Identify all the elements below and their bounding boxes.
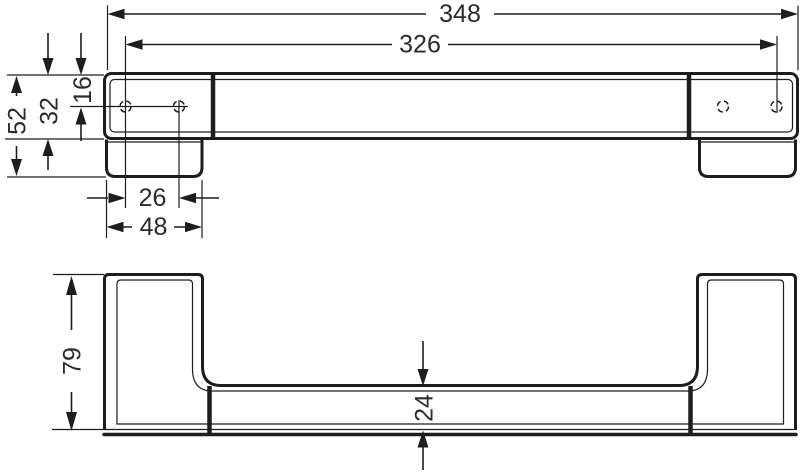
dim-26-arrow-right xyxy=(179,193,196,203)
dim-52-arrow-top xyxy=(11,76,22,93)
dim-16: 16 xyxy=(69,33,97,141)
dim-326: 326 xyxy=(126,31,778,209)
dim-79: 79 xyxy=(59,276,87,431)
dim-32-arrow-top xyxy=(43,58,54,75)
top-view: 348 326 52 32 xyxy=(4,0,799,241)
mounting-holes xyxy=(70,100,782,208)
dim-326-arrow-left xyxy=(126,39,143,49)
dimension-drawing: 348 326 52 32 xyxy=(0,0,800,472)
dim-24-arrow-top xyxy=(418,369,429,386)
dim-326-label: 326 xyxy=(399,31,441,59)
dim-16-arrow-top xyxy=(76,58,87,75)
dim-48-arrow-left xyxy=(107,222,124,232)
mounting-hole-right-inner xyxy=(718,101,729,112)
bar-front-inner-contour xyxy=(117,280,784,424)
drawing-canvas: 348 326 52 32 xyxy=(0,0,800,472)
dim-24-label: 24 xyxy=(411,394,439,422)
dim-26-label: 26 xyxy=(139,184,167,212)
dim-79-label: 79 xyxy=(59,347,87,375)
dim-48-label: 48 xyxy=(140,213,168,241)
dim-52-label: 52 xyxy=(4,107,32,135)
dim-79-arrow-bottom xyxy=(66,412,77,431)
dim-52-arrow-bottom xyxy=(11,159,22,176)
dim-48-arrow-right xyxy=(185,222,202,232)
dim-32-arrow-bottom xyxy=(43,139,54,156)
dim-32-label: 32 xyxy=(36,97,64,125)
dim-79-arrow-top xyxy=(66,276,77,295)
bar-plan-outline xyxy=(105,74,798,177)
dim-348-label: 348 xyxy=(439,0,481,28)
dim-348-arrow-right xyxy=(781,9,798,19)
dim-326-arrow-right xyxy=(760,39,777,49)
dim-24: 24 xyxy=(411,341,439,470)
left-baseplate-outline xyxy=(107,140,203,177)
dim-348: 348 xyxy=(108,0,799,70)
dim-16-label: 16 xyxy=(69,76,97,104)
right-baseplate-outline xyxy=(700,140,796,177)
dim-52: 52 xyxy=(4,76,32,176)
dim-348-arrow-left xyxy=(108,9,125,19)
front-view: 79 24 xyxy=(52,275,796,471)
dim-16-arrow-bottom xyxy=(76,108,87,125)
bar-plan-outer-edge xyxy=(105,74,798,139)
dim-26-arrow-left xyxy=(109,193,126,203)
dim-32: 32 xyxy=(36,33,64,170)
